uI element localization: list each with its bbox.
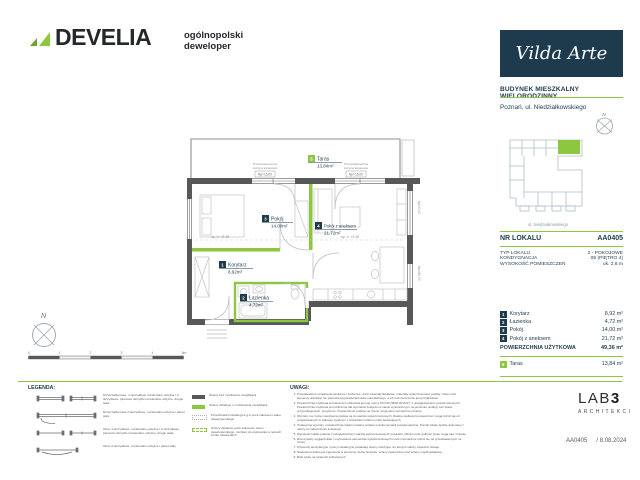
legend-row: Drzwi balkonowe 2-skrzydłowe, rozwieraln… bbox=[36, 411, 194, 424]
project-logo-text: Vilda Arte bbox=[516, 43, 608, 64]
room-name: Pokój z aneksem bbox=[510, 336, 551, 342]
room-area: 14,00 m² bbox=[602, 327, 623, 333]
parapet-note-top: Np=0,00 bbox=[417, 201, 421, 214]
wall-swatch-installation bbox=[192, 415, 207, 420]
info-value: ok. 2,6 m bbox=[603, 262, 623, 267]
total-area-label: POWIERZCHNIA UŻYTKOWA bbox=[500, 345, 576, 351]
wall-swatch-optional bbox=[192, 428, 207, 433]
room-label-lazienka: 2 Łazienka 4,72m² bbox=[240, 294, 273, 308]
svg-text:2: 2 bbox=[90, 351, 92, 355]
unit-location-highlight bbox=[558, 140, 580, 154]
divider bbox=[500, 246, 623, 247]
room-row: 2 Łazienka 4,72 m² bbox=[500, 319, 623, 326]
room-label-aneks: 4 Pokój z aneksem 21,72m² bbox=[315, 222, 357, 236]
divider bbox=[500, 97, 623, 98]
architect-logo-lab: LAB bbox=[578, 390, 611, 407]
compass-icon: N bbox=[593, 108, 617, 136]
legend-wall-desc: Ściany działowe poza zakresem stanu dewe… bbox=[211, 427, 287, 439]
divider bbox=[500, 231, 623, 232]
legend-wall-desc: Przedścianki instalacyjne g-k poza zakre… bbox=[211, 414, 287, 422]
svg-text:21,72m²: 21,72m² bbox=[324, 231, 341, 236]
terrace-outline bbox=[191, 139, 400, 178]
svg-text:14,00m²: 14,00m² bbox=[271, 224, 288, 229]
uwagi-item: Wymiary na rzucie mieszkania podane są d… bbox=[297, 415, 468, 423]
floor-plan: np. h. +2,45 np. h. +2,45 Np=0,00 Np=90,… bbox=[183, 133, 479, 377]
wall-swatch-modifiable bbox=[192, 405, 205, 409]
legend-desc: Drzwi balkonowe 2-skrzydłowe, rozwieraln… bbox=[103, 411, 185, 419]
legend-wall-row: Przedścianki instalacyjne g-k poza zakre… bbox=[192, 414, 287, 422]
room-name: Korytarz bbox=[510, 311, 530, 317]
uwagi-list: Przedstawione urządzenia sanitarne i kuc… bbox=[290, 393, 468, 460]
architect-logo: LAB3 ARCHITEKCI bbox=[578, 390, 632, 415]
uwagi-section: UWAGI: Przedstawione urządzenia sanitarn… bbox=[290, 385, 468, 461]
legend-openings: Drzwi balkonowe, 1-skrzydłowe rozwieraln… bbox=[36, 394, 194, 462]
entrance-door bbox=[205, 296, 229, 338]
svg-text:8,92m²: 8,92m² bbox=[228, 270, 243, 275]
brand-name: DEVELIA bbox=[55, 24, 151, 51]
room-area: 8,92 m² bbox=[605, 311, 623, 317]
legend-row: Drzwi balkonowe, 1-skrzydłowe rozwieraln… bbox=[36, 394, 194, 407]
legend-wall-row: Ściany działowe z możliwością modyfikacj… bbox=[192, 404, 287, 409]
svg-text:1: 1 bbox=[59, 351, 61, 355]
furniture bbox=[195, 189, 407, 318]
room-number-badge: 4 bbox=[500, 335, 507, 342]
room-name: Pokój bbox=[510, 327, 524, 333]
svg-text:kurtyna ekranowa: kurtyna ekranowa bbox=[253, 166, 277, 170]
room-label-korytarz: 1 Korytarz 8,92m² bbox=[219, 261, 253, 275]
unit-number-row: NR LOKALU AA0405 bbox=[500, 235, 623, 242]
total-area-value: 49,36 m² bbox=[601, 345, 623, 351]
door-swings bbox=[274, 184, 360, 305]
north-compass-icon: N bbox=[28, 308, 68, 352]
project-logo: Vilda Arte bbox=[500, 30, 623, 77]
room-list: 1 Korytarz 8,92 m² 2 Łazienka 4,72 m² 3 … bbox=[500, 311, 623, 343]
scale-bar: 0 1 2 3 4 5m bbox=[28, 349, 193, 363]
height-note: np. h. +2,45 bbox=[341, 235, 359, 239]
svg-text:4,72m²: 4,72m² bbox=[249, 303, 264, 308]
parapet-note-bottom: Np=90,00 bbox=[417, 266, 421, 281]
svg-text:3: 3 bbox=[121, 351, 123, 355]
legend-row: Okno 1-skrzydłowe, rozwieralno-uchylne i… bbox=[36, 428, 194, 441]
legend-symbol-window-1 bbox=[36, 428, 98, 441]
svg-text:Taras: Taras bbox=[317, 157, 330, 163]
legend-symbol-balcony-door-2 bbox=[36, 411, 98, 424]
info-label: WYSOKOŚĆ POMIESZCZEŃ bbox=[500, 262, 566, 267]
uwagi-item: Powierzchnia użytkowa pomieszczeń oblicz… bbox=[297, 402, 468, 414]
terrace-row: 5 Taras 13,84 m² bbox=[500, 361, 623, 368]
svg-text:Pokój z aneksem: Pokój z aneksem bbox=[324, 224, 356, 229]
room-number-badge: 2 bbox=[500, 319, 507, 326]
curtain-note-right: Przeciwsłoneczna kurtyna ekranowa Np=15,… bbox=[344, 162, 368, 177]
room-area: 4,72 m² bbox=[605, 319, 623, 325]
room-number-badge: 3 bbox=[500, 327, 507, 334]
unit-number-value: AA0405 bbox=[597, 235, 623, 242]
legend-walls: Ściany bez możliwości modyfikacji Ściany… bbox=[192, 394, 287, 443]
brand-tagline-line2: deweloper bbox=[184, 42, 243, 53]
uwagi-item: Wysokość lokalu podana z uwzględnieniem … bbox=[297, 433, 468, 437]
svg-text:Łazienka: Łazienka bbox=[249, 296, 269, 302]
legend-desc: Okno 1-skrzydłowe, rozwieralno-uchylne i… bbox=[103, 428, 185, 436]
site-map bbox=[500, 136, 598, 218]
svg-text:13,84m²: 13,84m² bbox=[317, 164, 334, 169]
legend-wall-desc: Ściany bez możliwości modyfikacji bbox=[209, 394, 285, 398]
legend-symbol-window-2 bbox=[36, 445, 98, 458]
sheet-date: / 8.08.2024 bbox=[596, 438, 626, 444]
room-row: 1 Korytarz 8,92 m² bbox=[500, 311, 623, 318]
terrace-name: Taras bbox=[510, 361, 523, 367]
room-number-badge: 1 bbox=[500, 311, 507, 318]
legend-wall-row: Ściany działowe poza zakresem stanu dewe… bbox=[192, 427, 287, 439]
brand-tagline: ogólnopolski deweloper bbox=[184, 31, 243, 52]
svg-text:Np=15,00: Np=15,00 bbox=[349, 172, 363, 176]
compass-n-label: N bbox=[602, 112, 606, 118]
legend-wall-row: Ściany bez możliwości modyfikacji bbox=[192, 394, 287, 399]
divider bbox=[500, 356, 623, 357]
height-note: np. h. +2,45 bbox=[211, 235, 229, 239]
svg-text:5m: 5m bbox=[182, 351, 187, 355]
terrace-number-badge: 5 bbox=[500, 361, 507, 368]
sheet-footer: AA0405 / 8.08.2024 bbox=[566, 438, 626, 444]
room-row: 4 Pokój z aneksem 21,72 m² bbox=[500, 335, 623, 342]
shaft bbox=[402, 140, 414, 176]
legend-row: Okno 2-skrzydłowe, rozwieralno-uchylne i… bbox=[36, 445, 194, 458]
bottom-divider bbox=[18, 381, 622, 382]
room-row: 3 Pokój 14,00 m² bbox=[500, 327, 623, 334]
terrace-area: 13,84 m² bbox=[602, 361, 623, 367]
room-name: Łazienka bbox=[510, 319, 532, 325]
map-street-label: ul. Niedziałkowskiego bbox=[498, 222, 598, 227]
legend-desc: Drzwi balkonowe, 1-skrzydłowe rozwieraln… bbox=[103, 394, 185, 406]
bathroom-door-opening bbox=[305, 288, 308, 308]
architect-logo-sub: ARCHITEKCI bbox=[578, 409, 632, 415]
unit-number-label: NR LOKALU bbox=[500, 235, 541, 242]
develia-logo-icon bbox=[30, 29, 51, 47]
north-label: N bbox=[41, 313, 47, 320]
svg-text:kurtyna ekranowa: kurtyna ekranowa bbox=[344, 166, 368, 170]
unit-info: TYP LOKALU 2 - POKOJOWE KONDYGNACJA 05 (… bbox=[500, 251, 623, 267]
sheet-code: AA0405 bbox=[566, 438, 587, 444]
unit-info-row: WYSOKOŚĆ POMIESZCZEŃ ok. 2,6 m bbox=[500, 262, 623, 267]
divider bbox=[500, 376, 623, 377]
legend-wall-desc: Ściany działowe z możliwością modyfikacj… bbox=[209, 404, 285, 408]
uwagi-item: Przedstawione urządzenia sanitarne i kuc… bbox=[297, 393, 468, 401]
uwagi-item: Brak tynku na ścianach żelbetowych. bbox=[297, 456, 468, 460]
svg-text:Pokój: Pokój bbox=[271, 217, 284, 223]
svg-text:Korytarz: Korytarz bbox=[228, 263, 247, 269]
legend-desc: Okno 2-skrzydłowe, rozwieralno-uchylne i… bbox=[103, 445, 185, 449]
uwagi-item: Ostateczne wymiary i powierzchnie lokalu… bbox=[297, 424, 468, 432]
floorplan-sheet: DEVELIA ogólnopolski deweloper Vilda Art… bbox=[0, 0, 640, 480]
svg-text:4: 4 bbox=[152, 351, 154, 355]
svg-text:0: 0 bbox=[28, 351, 30, 355]
total-area-row: POWIERZCHNIA UŻYTKOWA 49,36 m² bbox=[500, 345, 623, 351]
room-label-pokoj: 3 Pokój 14,00m² bbox=[262, 215, 293, 229]
architect-logo-3: 3 bbox=[611, 390, 619, 407]
uwagi-title: UWAGI: bbox=[290, 385, 468, 391]
svg-text:Np=15,00: Np=15,00 bbox=[258, 172, 272, 176]
uwagi-item: Rzeczywisty wygląd lokalu i usytuowanie … bbox=[297, 438, 468, 446]
legend-title: LEGENDA: bbox=[28, 385, 55, 391]
legend-symbol-balcony-door-1 bbox=[36, 394, 98, 407]
curtain-note-left: Przeciwsłoneczna kurtyna ekranowa Np=15,… bbox=[253, 162, 277, 177]
room-area: 21,72 m² bbox=[602, 336, 623, 342]
wall-swatch-fixed bbox=[192, 395, 205, 399]
